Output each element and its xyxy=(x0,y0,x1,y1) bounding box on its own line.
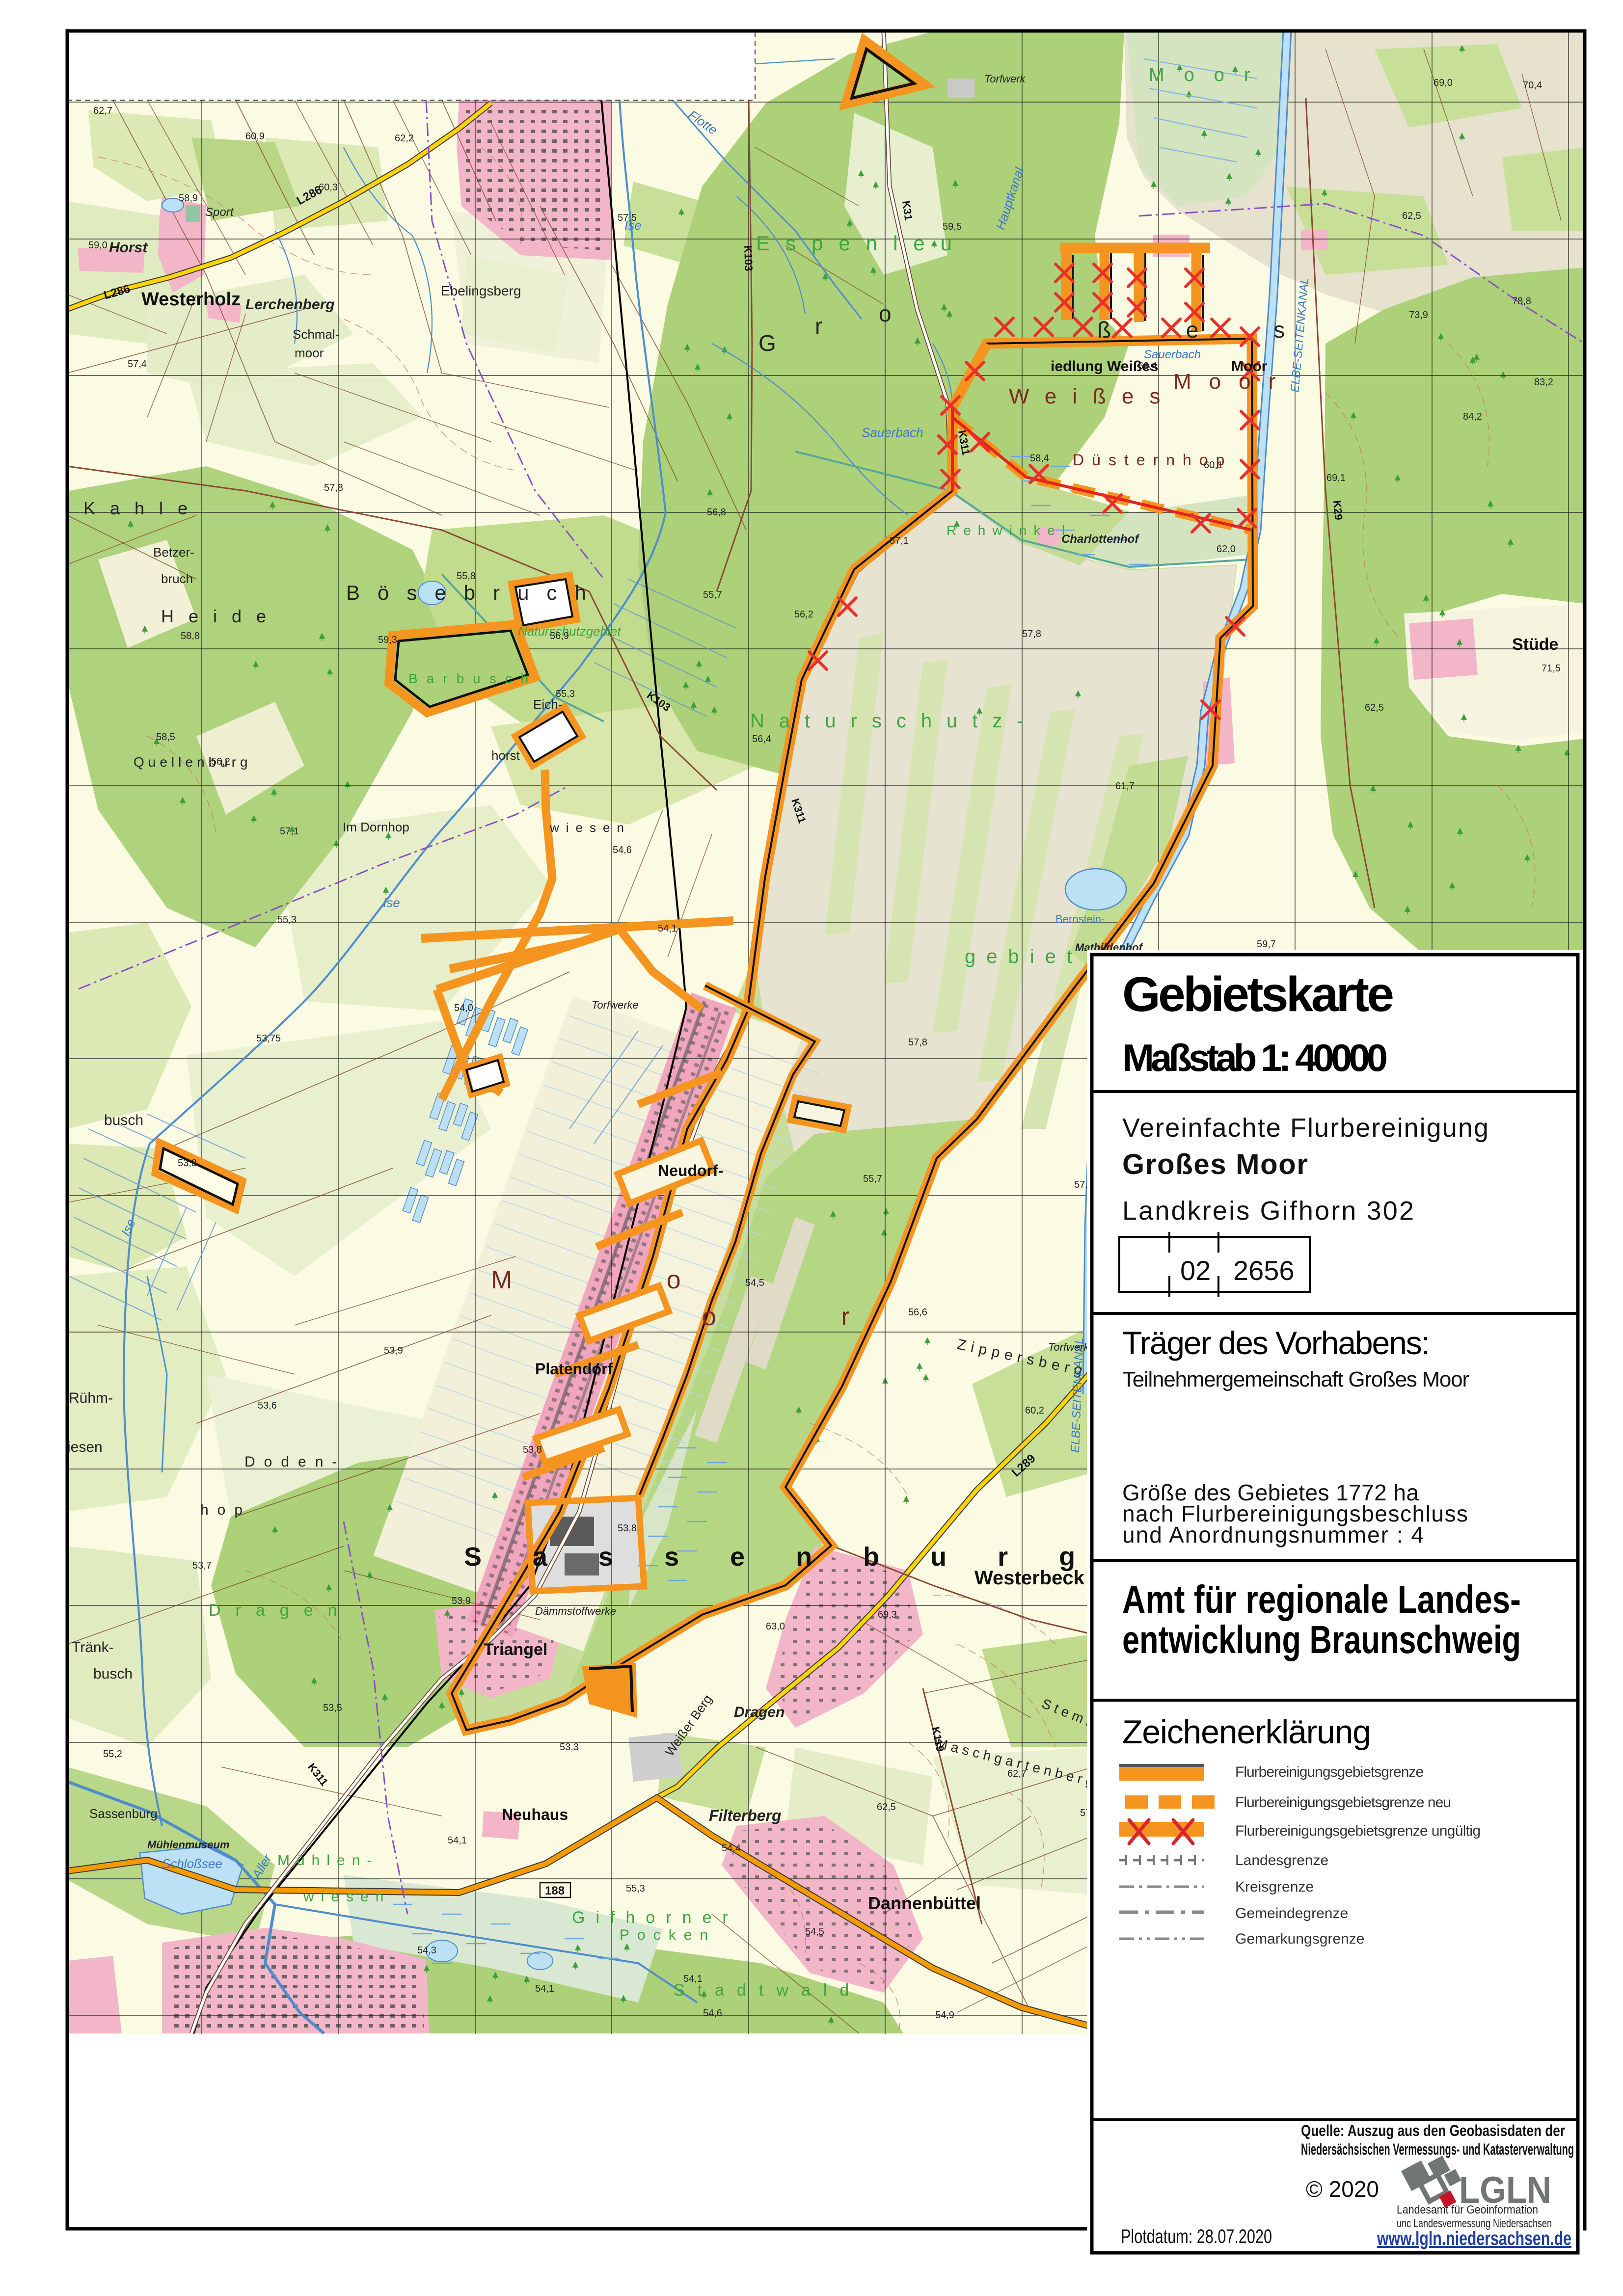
svg-text:Moor: Moor xyxy=(1149,65,1270,85)
svg-text:56,9: 56,9 xyxy=(550,631,569,641)
svg-text:55,3: 55,3 xyxy=(277,914,297,925)
svg-text:55,8: 55,8 xyxy=(457,571,476,582)
svg-text:gebiet: gebiet xyxy=(965,946,1083,967)
svg-text:62,0: 62,0 xyxy=(1217,544,1236,555)
svg-text:62,7: 62,7 xyxy=(1007,1768,1027,1779)
svg-text:62,7: 62,7 xyxy=(93,106,112,116)
svg-text:62,5: 62,5 xyxy=(1402,211,1421,221)
svg-text:Träger des Vorhabens:: Träger des Vorhabens: xyxy=(1122,1325,1430,1361)
svg-text:Niedersächsischen Vermessungs-: Niedersächsischen Vermessungs- und Katas… xyxy=(1301,2140,1574,2158)
svg-text:60,2: 60,2 xyxy=(1025,1405,1044,1416)
svg-text:Quellenburg: Quellenburg xyxy=(134,754,252,770)
svg-text:Bernstein-: Bernstein- xyxy=(1055,913,1105,925)
svg-text:Teilnehmergemeinschaft Großes: Teilnehmergemeinschaft Großes Moor xyxy=(1122,1367,1469,1391)
svg-text:61,7: 61,7 xyxy=(1115,781,1135,792)
svg-text:Dämmstoffwerke: Dämmstoffwerke xyxy=(535,1605,616,1617)
svg-text:Doden-: Doden- xyxy=(244,1454,346,1470)
svg-text:53,9: 53,9 xyxy=(384,1345,403,1356)
svg-text:56,4: 56,4 xyxy=(752,734,771,745)
svg-text:Charlottenhof: Charlottenhof xyxy=(1061,533,1139,546)
svg-text:59,7: 59,7 xyxy=(1257,939,1276,950)
svg-text:Dragen: Dragen xyxy=(734,1704,784,1720)
svg-text:83,2: 83,2 xyxy=(1534,377,1553,388)
svg-text:53,75: 53,75 xyxy=(256,1033,281,1044)
svg-text:57,1: 57,1 xyxy=(890,535,909,546)
svg-text:G: G xyxy=(758,330,806,356)
svg-text:58,9: 58,9 xyxy=(179,193,198,204)
svg-text:62,2: 62,2 xyxy=(395,133,414,144)
svg-text:Amt für regionale Landes-: Amt für regionale Landes- xyxy=(1122,1577,1521,1621)
svg-text:69,3: 69,3 xyxy=(878,1609,897,1620)
svg-text:Heide: Heide xyxy=(161,606,281,626)
svg-text:Naturschutz-: Naturschutz- xyxy=(750,710,1038,732)
svg-text:K103: K103 xyxy=(742,245,755,271)
svg-text:56,8: 56,8 xyxy=(707,507,726,518)
svg-text:Vereinfachte Flurbereinigung: Vereinfachte Flurbereinigung xyxy=(1122,1113,1488,1143)
svg-text:54,0: 54,0 xyxy=(454,1003,473,1014)
svg-text:Horst: Horst xyxy=(109,240,148,256)
svg-text:moor: moor xyxy=(295,346,324,360)
svg-text:horst: horst xyxy=(491,748,520,763)
svg-text:69,1: 69,1 xyxy=(1326,473,1346,483)
svg-text:54,5: 54,5 xyxy=(805,1926,824,1937)
svg-text:Landesamt für Geoinformation: Landesamt für Geoinformation xyxy=(1397,2203,1538,2216)
svg-text:Zeichenerklärung: Zeichenerklärung xyxy=(1122,1713,1371,1751)
svg-text:54,4: 54,4 xyxy=(722,1843,741,1854)
svg-text:58,8: 58,8 xyxy=(181,631,200,641)
svg-text:54,6: 54,6 xyxy=(613,845,632,855)
svg-text:www.lgln.niedersachsen.de: www.lgln.niedersachsen.de xyxy=(1377,2228,1571,2249)
svg-text:Flurbereinigungsgebietsgrenze: Flurbereinigungsgebietsgrenze neu xyxy=(1235,1794,1451,1811)
svg-text:und Anordnungsnummer : 4: und Anordnungsnummer : 4 xyxy=(1122,1522,1424,1548)
svg-text:Moor: Moor xyxy=(1231,358,1268,374)
svg-text:Gemeindegrenze: Gemeindegrenze xyxy=(1235,1905,1348,1922)
svg-text:Betzer-: Betzer- xyxy=(153,545,194,560)
svg-text:Dannenbüttel: Dannenbüttel xyxy=(868,1893,981,1913)
svg-text:entwicklung Braunschweig: entwicklung Braunschweig xyxy=(1122,1618,1521,1661)
svg-text:Kahle: Kahle xyxy=(83,498,202,518)
svg-text:57,8: 57,8 xyxy=(324,482,343,493)
svg-text:54,9: 54,9 xyxy=(935,2010,954,2021)
svg-text:63,4: 63,4 xyxy=(1138,361,1157,372)
svg-text:wiesen: wiesen xyxy=(549,820,631,835)
svg-text:Gemarkungsgrenze: Gemarkungsgrenze xyxy=(1235,1931,1364,1947)
svg-text:56,2: 56,2 xyxy=(211,756,230,767)
svg-text:53,8: 53,8 xyxy=(618,1523,637,1534)
svg-text:Schloßsee: Schloßsee xyxy=(162,1856,222,1871)
svg-text:Landkreis Gifhorn 302: Landkreis Gifhorn 302 xyxy=(1122,1196,1414,1226)
svg-text:Westerbeck: Westerbeck xyxy=(974,1567,1085,1589)
svg-text:Ise: Ise xyxy=(383,895,400,910)
svg-text:69,0: 69,0 xyxy=(1434,78,1453,88)
svg-text:71,5: 71,5 xyxy=(1542,663,1561,674)
svg-text:Landesgrenze: Landesgrenze xyxy=(1235,1852,1328,1869)
svg-text:57,4: 57,4 xyxy=(128,359,147,370)
svg-text:84,2: 84,2 xyxy=(1463,411,1482,422)
svg-text:Gifhorner: Gifhorner xyxy=(572,1908,739,1927)
svg-text:Großes Moor: Großes Moor xyxy=(1122,1148,1308,1180)
svg-text:57,8: 57,8 xyxy=(1022,629,1041,640)
svg-text:53,5: 53,5 xyxy=(323,1703,342,1713)
svg-text:58,5: 58,5 xyxy=(156,732,175,743)
svg-text:Flurbereinigungsgebietsgrenze: Flurbereinigungsgebietsgrenze ungültig xyxy=(1235,1823,1481,1839)
svg-text:58,4: 58,4 xyxy=(1030,453,1049,464)
svg-text:Torfwerk: Torfwerk xyxy=(984,73,1026,85)
svg-text:Maßstab 1: 40000: Maßstab 1: 40000 xyxy=(1122,1036,1388,1079)
svg-text:60,1: 60,1 xyxy=(1204,460,1223,471)
svg-text:57,1: 57,1 xyxy=(280,826,299,837)
svg-text:54,1: 54,1 xyxy=(448,1835,467,1846)
svg-text:Torfwerke: Torfwerke xyxy=(592,999,639,1011)
svg-text:Plotdatum: 28.07.2020: Plotdatum: 28.07.2020 xyxy=(1121,2226,1272,2247)
svg-text:busch: busch xyxy=(104,1112,143,1128)
svg-text:Ebelingsberg: Ebelingsberg xyxy=(441,283,521,298)
svg-text:Flurbereinigungsgebietsgrenze: Flurbereinigungsgebietsgrenze xyxy=(1235,1764,1424,1780)
svg-text:55,3: 55,3 xyxy=(556,689,575,699)
svg-text:Rehwinkel: Rehwinkel xyxy=(947,523,1072,538)
svg-text:Dragen: Dragen xyxy=(209,1601,352,1620)
svg-text:54,1: 54,1 xyxy=(658,923,677,934)
svg-text:Stüde: Stüde xyxy=(1512,635,1558,654)
svg-text:56,6: 56,6 xyxy=(908,1307,927,1318)
svg-text:Sassenburg: Sassenburg xyxy=(89,1806,158,1821)
svg-text:188: 188 xyxy=(545,1884,565,1897)
svg-text:hop: hop xyxy=(200,1502,251,1518)
svg-text:busch: busch xyxy=(93,1666,133,1682)
svg-text:Lerchenberg: Lerchenberg xyxy=(245,296,335,313)
svg-text:© 2020: © 2020 xyxy=(1306,2176,1379,2202)
svg-text:53,3: 53,3 xyxy=(560,1742,579,1753)
svg-text:60,9: 60,9 xyxy=(245,131,265,142)
svg-text:K29: K29 xyxy=(1331,500,1345,520)
svg-text:wiesen: wiesen xyxy=(303,1889,390,1905)
svg-text:o: o xyxy=(879,301,892,326)
svg-text:Sauerbach: Sauerbach xyxy=(1144,348,1201,361)
svg-text:Weißes: Weißes xyxy=(1009,384,1176,408)
svg-text:55,7: 55,7 xyxy=(703,589,722,600)
svg-text:Espenleu: Espenleu xyxy=(756,232,968,255)
svg-text:Neuhaus: Neuhaus xyxy=(502,1806,568,1823)
svg-text:bruch: bruch xyxy=(161,571,193,586)
svg-text:63,0: 63,0 xyxy=(766,1621,785,1632)
svg-text:Torfwerk: Torfwerk xyxy=(1048,1341,1090,1353)
svg-text:Schmal-: Schmal- xyxy=(293,327,339,342)
svg-text:54,1: 54,1 xyxy=(683,1974,703,1984)
svg-text:Naturschutzgebiet: Naturschutzgebiet xyxy=(518,624,622,639)
svg-text:2656: 2656 xyxy=(1233,1255,1295,1286)
svg-text:60,3: 60,3 xyxy=(319,182,338,193)
svg-text:Triangel: Triangel xyxy=(484,1640,547,1659)
svg-text:Mühlenmuseum: Mühlenmuseum xyxy=(147,1839,229,1851)
svg-text:56,2: 56,2 xyxy=(794,609,813,620)
svg-text:57,5: 57,5 xyxy=(618,213,637,223)
svg-text:62,5: 62,5 xyxy=(1365,702,1384,713)
svg-text:Barbusch: Barbusch xyxy=(408,671,537,686)
svg-text:59,5: 59,5 xyxy=(943,221,962,232)
svg-text:53,7: 53,7 xyxy=(192,1560,212,1571)
svg-text:54,6: 54,6 xyxy=(703,2008,722,2019)
svg-text:54,3: 54,3 xyxy=(417,1945,436,1956)
svg-text:Kreisgrenze: Kreisgrenze xyxy=(1235,1879,1314,1895)
svg-text:Bösebruch: Bösebruch xyxy=(346,581,604,604)
svg-text:r: r xyxy=(815,313,822,339)
svg-text:Sauerbach: Sauerbach xyxy=(862,425,923,440)
svg-text:53,9: 53,9 xyxy=(452,1596,471,1606)
svg-text:iesen: iesen xyxy=(67,1439,103,1455)
svg-text:54,5: 54,5 xyxy=(745,1278,764,1288)
svg-text:o r: o r xyxy=(702,1303,909,1331)
svg-text:Platendorf: Platendorf xyxy=(535,1360,613,1378)
svg-text:73,9: 73,9 xyxy=(1409,310,1428,320)
svg-text:Rühm-: Rühm- xyxy=(69,1390,113,1406)
svg-text:Im Dornhop: Im Dornhop xyxy=(343,820,409,834)
svg-text:M o: M o xyxy=(491,1266,755,1294)
svg-text:Mühlen-: Mühlen- xyxy=(277,1852,379,1869)
svg-text:Pocken: Pocken xyxy=(620,1927,716,1943)
svg-text:02: 02 xyxy=(1180,1255,1211,1286)
svg-text:Westerholz: Westerholz xyxy=(141,289,241,310)
svg-text:54,1: 54,1 xyxy=(535,1983,554,1994)
svg-text:55,7: 55,7 xyxy=(863,1174,882,1184)
svg-text:70,4: 70,4 xyxy=(1523,80,1542,91)
svg-text:59,0: 59,0 xyxy=(88,240,108,251)
svg-text:53,3: 53,3 xyxy=(178,1158,197,1169)
svg-text:53,8: 53,8 xyxy=(523,1444,542,1455)
svg-text:78,8: 78,8 xyxy=(1512,296,1531,307)
svg-text:ß e s: ß e s xyxy=(1097,317,1319,343)
svg-text:53,6: 53,6 xyxy=(258,1400,277,1411)
svg-text:Neudorf-: Neudorf- xyxy=(658,1162,723,1179)
svg-text:Sport: Sport xyxy=(205,206,234,219)
svg-text:Gebietskarte: Gebietskarte xyxy=(1122,967,1394,1022)
svg-text:55,2: 55,2 xyxy=(103,1749,122,1760)
svg-text:62,5: 62,5 xyxy=(877,1802,896,1813)
svg-text:55,3: 55,3 xyxy=(626,1883,645,1894)
svg-text:59,3: 59,3 xyxy=(378,635,397,645)
svg-text:57,8: 57,8 xyxy=(908,1037,927,1048)
svg-text:Filterberg: Filterberg xyxy=(709,1807,782,1824)
svg-text:Tränk-: Tränk- xyxy=(72,1639,114,1655)
svg-text:Quelle: Auszug aus den Geobas: Quelle: Auszug aus den Geobasisdaten der xyxy=(1301,2122,1565,2139)
